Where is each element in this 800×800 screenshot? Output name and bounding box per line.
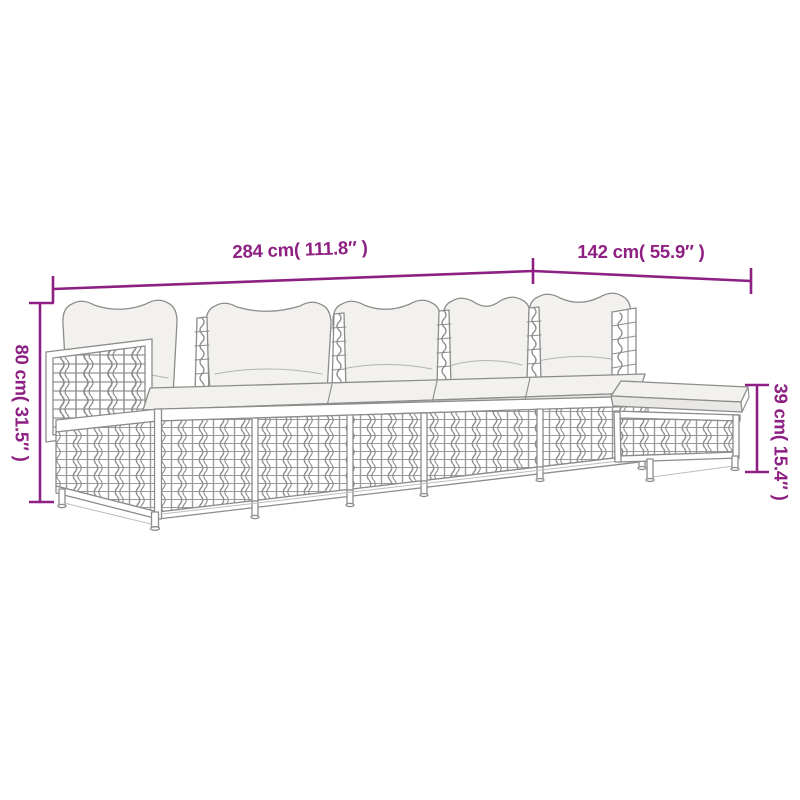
back-cushion <box>206 302 331 392</box>
product-dimension-diagram: 284 cm( 111.8″ ) 142 cm( 55.9″ ) 80 cm( … <box>0 0 800 800</box>
back-cushion <box>443 297 531 381</box>
leg <box>732 456 738 468</box>
leg <box>537 467 543 479</box>
furniture-drawing <box>46 293 749 530</box>
footstool <box>611 381 749 482</box>
dimension-label-extension-width: 142 cm( 55.9″ ) <box>577 243 704 262</box>
dimension-line-extension-width <box>533 268 751 294</box>
dimension-line-total-width <box>53 258 533 303</box>
back-cushion <box>333 300 441 386</box>
sofa-line-art <box>0 0 800 800</box>
leg <box>152 512 159 527</box>
dimension-label-overall-height: 80 cm( 31.5″ ) <box>12 344 31 461</box>
leg <box>647 459 653 479</box>
dimension-label-stool-height: 39 cm( 15.4″ ) <box>771 383 790 500</box>
